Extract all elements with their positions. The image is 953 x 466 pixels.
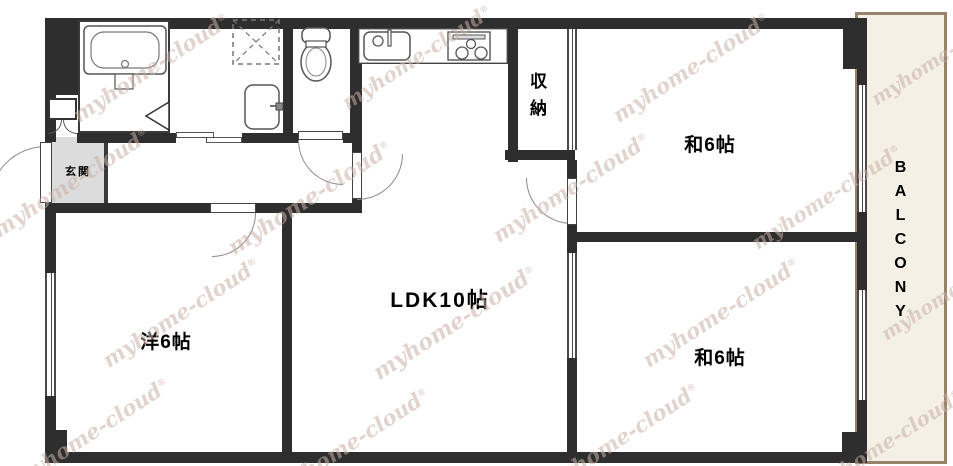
stove-burners-icon [448, 32, 490, 60]
wall [508, 18, 518, 162]
storage-sliding-door [567, 29, 577, 150]
wall [567, 232, 857, 242]
window [45, 273, 56, 396]
washing-machine-pan-icon [231, 18, 281, 66]
shoe-cabinet-icon [48, 98, 77, 120]
wall [45, 203, 210, 213]
room-label-storage: 収納 [529, 68, 548, 122]
watermark: myhome-cloud® [98, 253, 264, 373]
western-room-door [210, 203, 256, 213]
entrance-step-line [104, 141, 108, 203]
wall [343, 133, 362, 143]
folding-door-icon [146, 102, 169, 130]
room-label-japanese-top: 和6帖 [660, 130, 760, 157]
room-label-western: 洋6帖 [116, 327, 216, 354]
room-label-japanese-bottom: 和6帖 [670, 343, 770, 370]
wall [45, 203, 56, 273]
japanese-room-door-swing-arc [526, 178, 572, 224]
japanese-room-door [567, 178, 577, 225]
washbasin-icon [243, 83, 285, 131]
wall [842, 432, 867, 452]
wall [45, 452, 867, 463]
kitchen-sink-icon [364, 30, 410, 60]
room-label-ldk: LDK10帖 [380, 284, 500, 314]
western-room-door-swing-arc [212, 213, 256, 257]
wall [567, 160, 577, 178]
hall-to-ldk-door [352, 152, 362, 199]
room-label-entrance: 玄関 [56, 163, 100, 179]
wall [242, 133, 298, 143]
balcony-window [857, 85, 867, 212]
shoe-cabinet-door-arc [63, 120, 77, 134]
toilet-icon [296, 26, 336, 84]
wall [47, 430, 67, 452]
wall [567, 242, 577, 253]
bathtub-icon [80, 22, 172, 135]
kitchen-counter [358, 28, 508, 64]
wall [857, 212, 867, 290]
floor-plan: BALCONY [0, 0, 953, 466]
hall-to-ldk-door-swing-arc [357, 154, 403, 200]
wall [45, 18, 80, 95]
wall [843, 29, 867, 69]
washroom-sliding-door [206, 137, 242, 143]
wall [505, 150, 575, 160]
bathroom-unit [78, 20, 170, 133]
balcony-window [857, 290, 867, 400]
wall [282, 208, 292, 452]
wall [256, 203, 362, 213]
toilet-door [298, 131, 343, 140]
wall [567, 358, 577, 452]
balcony-label: BALCONY [892, 156, 909, 324]
toilet-door-swing-arc [298, 140, 343, 185]
room-sliding-door [567, 253, 577, 358]
shoe-cabinet-door-arc [48, 120, 62, 134]
watermark: myhome-cloud® [368, 260, 541, 385]
entrance-door [40, 142, 52, 203]
